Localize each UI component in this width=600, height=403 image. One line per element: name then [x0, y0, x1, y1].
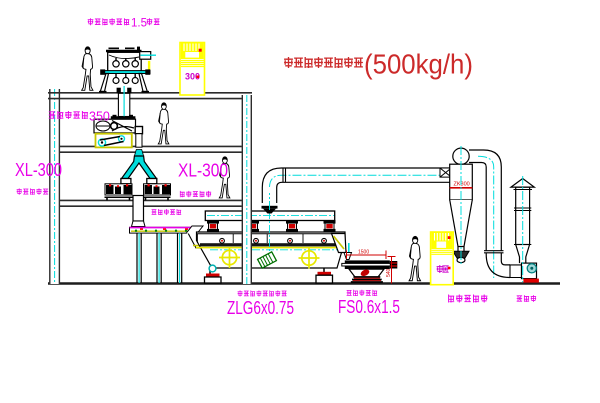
svg-text:350: 350: [89, 110, 110, 124]
svg-text:XL-300: XL-300: [178, 160, 228, 181]
svg-text:540: 540: [386, 268, 392, 277]
svg-text:FS0.6x1.5: FS0.6x1.5: [338, 297, 400, 317]
svg-text:XL-300: XL-300: [15, 159, 62, 180]
svg-text:1.5: 1.5: [131, 18, 147, 30]
svg-text:ZLG6x0.75: ZLG6x0.75: [227, 298, 294, 318]
svg-text:1500: 1500: [358, 250, 369, 256]
svg-text:ZK800: ZK800: [454, 182, 470, 188]
svg-text:(500kg/h): (500kg/h): [364, 49, 473, 80]
